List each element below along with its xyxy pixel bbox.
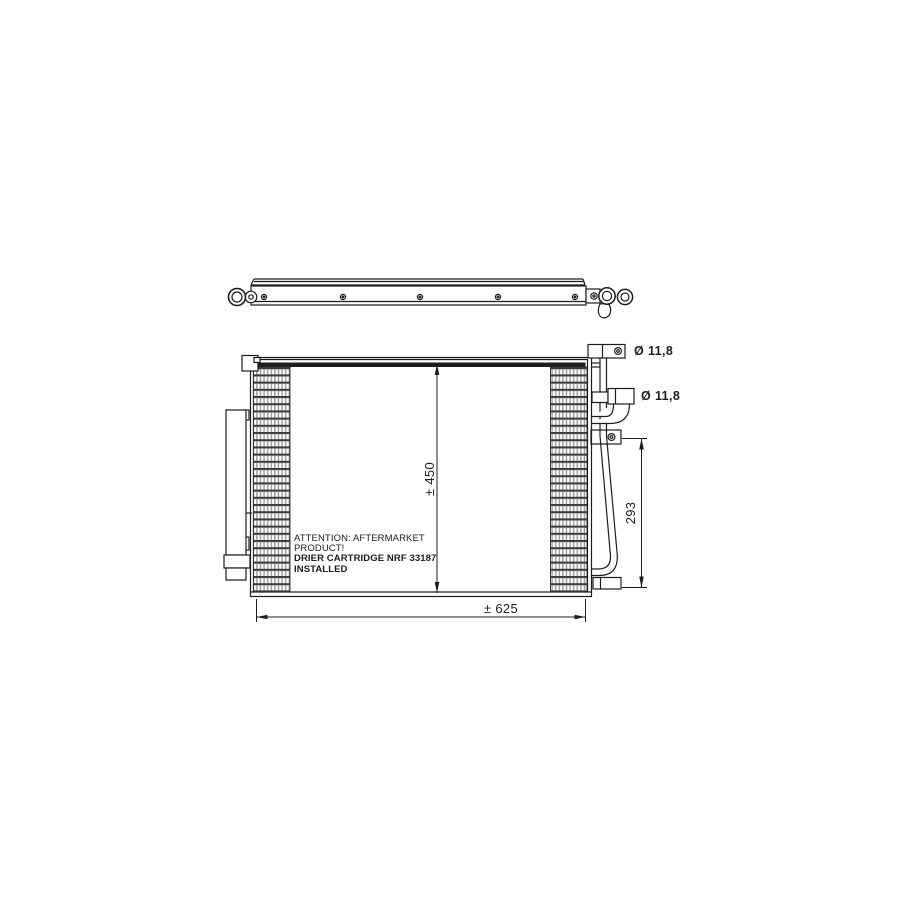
aftermarket-attention-note: ATTENTION: AFTERMARKET PRODUCT! DRIER CA…	[294, 534, 454, 575]
dimension-label-pipe-span: 293	[623, 488, 637, 538]
drawing-linework	[0, 0, 900, 900]
fin-pack-right	[551, 367, 588, 592]
mount-bracket-top-left	[242, 356, 260, 372]
pipe-bracket-top	[588, 345, 625, 359]
dimension-label-core-height: ± 450	[422, 454, 436, 504]
note-line-4: INSTALLED	[294, 565, 454, 575]
fin-pack-left	[254, 367, 291, 592]
top-view-right-fittings	[586, 288, 633, 318]
outlet-fitting	[593, 578, 621, 590]
dimension-label-port-mid-diameter: Ø 11,8	[641, 389, 680, 403]
top-view	[229, 279, 633, 318]
dimension-label-core-width: ± 625	[471, 601, 531, 616]
condenser-technical-drawing: Ø 11,8 Ø 11,8 293 ± 450 ± 625 ATTENTION:…	[0, 0, 900, 900]
pipework-right	[588, 345, 634, 590]
dimension-label-port-top-diameter: Ø 11,8	[634, 344, 673, 358]
receiver-drier	[224, 410, 252, 580]
inlet-fitting	[592, 389, 635, 424]
